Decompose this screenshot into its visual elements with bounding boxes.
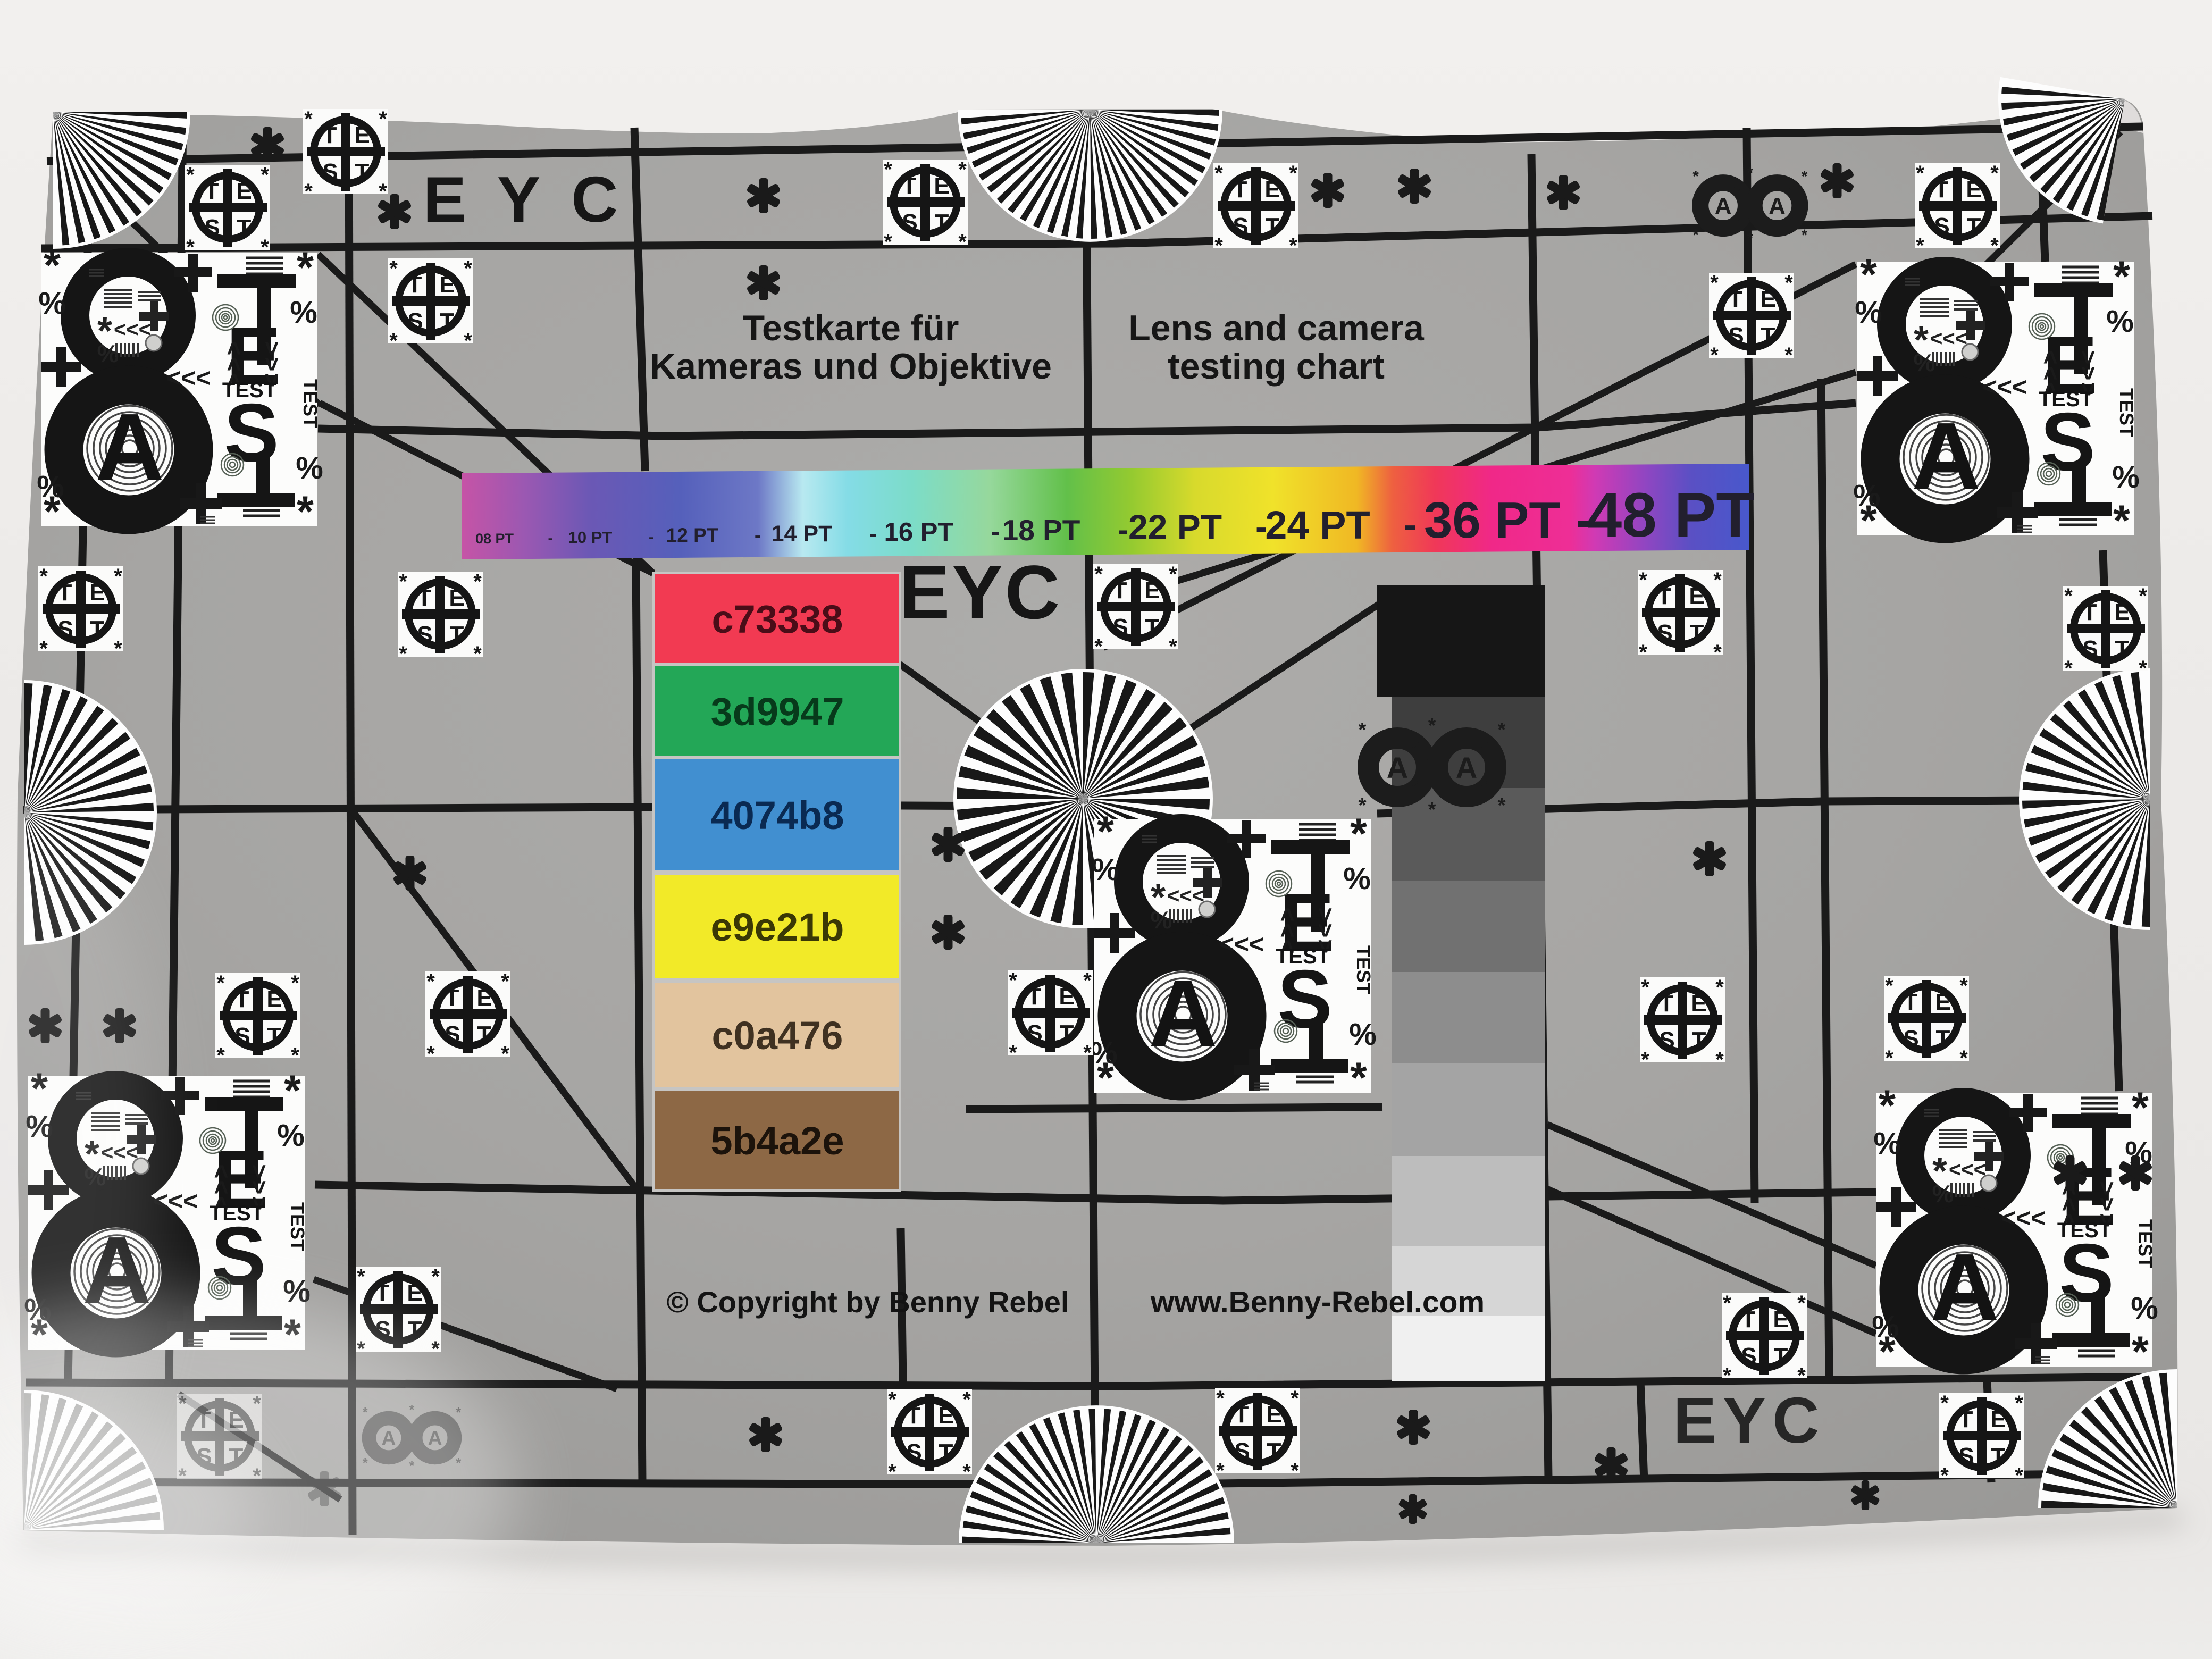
svg-text:-: - (755, 524, 761, 546)
svg-text:-: - (1118, 513, 1128, 546)
svg-text:36 PT: 36 PT (1424, 492, 1560, 549)
svg-text:c73338: c73338 (712, 597, 843, 641)
svg-text:© Copyright by Benny Rebel: © Copyright by Benny Rebel (667, 1285, 1069, 1319)
svg-text:EYC: EYC (1673, 1384, 1826, 1456)
svg-text:e9e21b: e9e21b (711, 905, 844, 949)
svg-text:24 PT: 24 PT (1265, 503, 1370, 547)
svg-text:EYC: EYC (899, 550, 1062, 635)
svg-text:4074b8: 4074b8 (711, 793, 844, 837)
svg-text:48 PT: 48 PT (1587, 480, 1755, 550)
svg-text:Testkarte für: Testkarte für (743, 308, 959, 348)
svg-text:12 PT: 12 PT (666, 524, 719, 546)
svg-text:08 PT: 08 PT (475, 531, 514, 547)
svg-text:-: - (991, 517, 1000, 546)
svg-text:EYC: EYC (423, 163, 649, 236)
svg-text:22 PT: 22 PT (1128, 507, 1222, 547)
svg-text:-: - (1404, 502, 1417, 547)
svg-text:5b4a2e: 5b4a2e (711, 1119, 844, 1163)
svg-text:18 PT: 18 PT (1002, 514, 1080, 547)
svg-text:-: - (548, 530, 553, 546)
svg-text:Lens and camera: Lens and camera (1128, 308, 1425, 348)
svg-text:14 PT: 14 PT (772, 521, 833, 547)
svg-text:Kameras und Objektive: Kameras und Objektive (650, 346, 1052, 387)
svg-text:-: - (869, 521, 877, 547)
svg-text:3d9947: 3d9947 (711, 690, 844, 734)
svg-text:c0a476: c0a476 (712, 1013, 843, 1058)
svg-text:www.Benny-Rebel.com: www.Benny-Rebel.com (1150, 1285, 1485, 1319)
svg-text:testing chart: testing chart (1168, 346, 1385, 387)
svg-text:10 PT: 10 PT (568, 528, 613, 547)
svg-text:-: - (649, 527, 654, 546)
svg-text:16 PT: 16 PT (884, 518, 954, 547)
